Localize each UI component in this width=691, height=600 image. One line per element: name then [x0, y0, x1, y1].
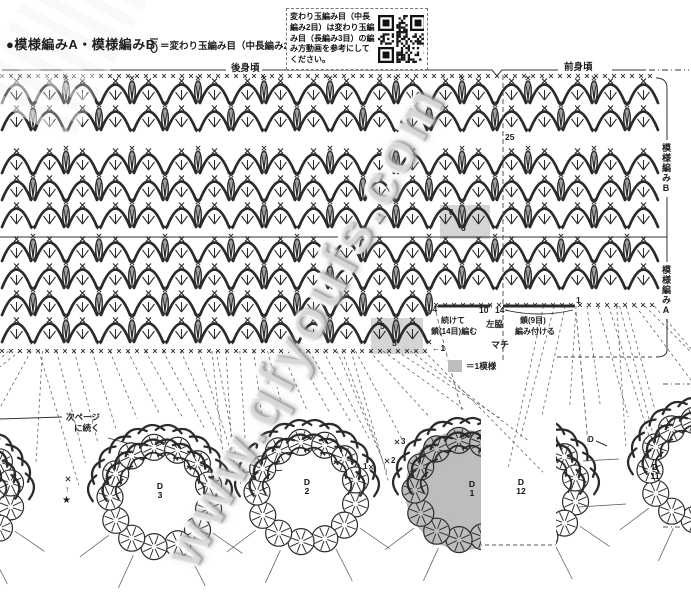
x-stitch [576, 74, 580, 78]
join-number-2: 2 [391, 457, 395, 465]
petal-wheel [643, 480, 669, 506]
up-arrow-icon: ↑ [489, 301, 493, 310]
back-body-label: 後身頃 [229, 64, 262, 74]
motif-number: 2 [297, 487, 317, 496]
x-stitch [278, 203, 283, 208]
qr-module [414, 36, 416, 38]
qr-module [382, 36, 384, 38]
qr-module [405, 36, 407, 38]
shell-sticks [638, 160, 650, 170]
x-stitch [592, 146, 596, 150]
qr-module [407, 54, 409, 56]
shell-sticks [242, 117, 254, 127]
x-stitch [288, 74, 292, 78]
x-stitch [427, 234, 431, 238]
shell-sticks [539, 160, 551, 170]
x-stitch [344, 149, 349, 154]
petal-wheel [408, 500, 434, 526]
shell-sticks [77, 160, 89, 170]
x-stitch [558, 74, 562, 78]
x-stitch [410, 149, 415, 154]
gusset-guide [576, 312, 588, 445]
x-stitch [270, 349, 274, 353]
x-stitch [575, 176, 580, 181]
x-stitch [113, 149, 118, 154]
petal-wheel [0, 470, 24, 496]
guide-line [128, 351, 161, 415]
qr-module [387, 33, 389, 35]
petal-spoke [487, 527, 496, 530]
scallop-arc [478, 437, 499, 449]
x-stitch [542, 176, 547, 181]
shell-sticks [44, 160, 56, 170]
x-stitch [410, 106, 415, 111]
shell-sticks [209, 248, 221, 258]
qr-module [407, 45, 409, 47]
petal-spoke [510, 436, 519, 439]
shell-sticks [638, 248, 650, 258]
qr-module [423, 38, 424, 40]
x-stitch [212, 149, 217, 154]
scallop-arc [92, 460, 104, 484]
shell-sticks [176, 214, 188, 224]
shell-sticks [407, 302, 419, 312]
x-stitch [603, 74, 607, 78]
shell-sticks [110, 214, 122, 224]
x-stitch [608, 264, 613, 269]
qr-module [398, 58, 400, 60]
x-stitch [54, 74, 58, 78]
pattern-b-label: 模様編みB [661, 140, 670, 197]
petal-wheel [486, 436, 512, 462]
shell-sticks [638, 90, 650, 100]
x-stitch [27, 74, 31, 78]
shell-sticks [110, 187, 122, 197]
x-stitch [146, 149, 151, 154]
petal-spoke [491, 453, 500, 456]
x-stitch [476, 79, 481, 84]
shell-sticks [176, 117, 188, 127]
shell-sticks [44, 214, 56, 224]
x-stitch [639, 74, 643, 78]
x-stitch [641, 149, 646, 154]
x-stitch [279, 74, 283, 78]
x-stitch [146, 106, 151, 111]
shell-sticks [638, 214, 650, 224]
petal-wheel [97, 484, 123, 510]
shell-sticks [242, 248, 254, 258]
x-stitch [90, 349, 94, 353]
guide-line [268, 351, 284, 413]
petal-spoke [547, 438, 555, 442]
petal-spoke [499, 438, 502, 447]
petal-spoke [485, 538, 494, 541]
qr-module [396, 45, 398, 47]
shell-sticks [605, 160, 617, 170]
petal-spoke [546, 446, 550, 454]
x-stitch [342, 74, 346, 78]
x-stitch [344, 318, 349, 323]
qr-module [403, 29, 405, 31]
x-stitch [14, 79, 19, 84]
x-stitch [344, 176, 349, 181]
x-stitch [540, 74, 544, 78]
petal-spoke [485, 532, 493, 536]
shell-sticks [77, 117, 89, 127]
motif-tick [80, 535, 109, 557]
x-stitch [113, 264, 118, 269]
petal-spoke [494, 451, 497, 460]
x-stitch [612, 74, 616, 78]
x-stitch [212, 291, 217, 296]
x-stitch [328, 76, 332, 80]
x-stitch [278, 318, 283, 323]
qr-module [417, 42, 419, 44]
x-stitch [212, 106, 217, 111]
pattern-swatch [448, 360, 462, 372]
qr-module [387, 38, 389, 40]
shell-sticks [605, 214, 617, 224]
x-stitch [36, 74, 40, 78]
x-stitch [641, 264, 646, 269]
x-stitch [99, 349, 103, 353]
shell-sticks [110, 160, 122, 170]
petal-spoke [498, 459, 501, 468]
qr-module [403, 17, 405, 19]
scallop-arc [397, 453, 409, 477]
shell-sticks [44, 90, 56, 100]
qr-module [403, 38, 405, 40]
x-stitch [648, 74, 652, 78]
shell-sticks [341, 117, 353, 127]
x-stitch [47, 318, 52, 323]
motif-group [385, 418, 548, 581]
guide-line [645, 306, 691, 407]
qr-module [410, 52, 412, 54]
petal-spoke [522, 528, 525, 537]
petal-spoke [510, 536, 519, 539]
x-stitch [542, 203, 547, 208]
petal-spoke [484, 432, 487, 441]
motif-center [667, 437, 691, 503]
x-stitch [80, 318, 85, 323]
qr-module [403, 56, 405, 58]
x-stitch [113, 106, 118, 111]
qr-module [414, 54, 416, 56]
x-stitch [625, 234, 629, 238]
x-stitch [542, 149, 547, 154]
x-stitch [212, 318, 217, 323]
x-stitch [126, 74, 130, 78]
d-marker: D [588, 436, 594, 444]
x-stitch [311, 264, 316, 269]
shell-sticks [242, 275, 254, 285]
shell-sticks [506, 160, 518, 170]
petal-spoke [505, 452, 513, 456]
x-stitch [262, 146, 266, 150]
qr-module [421, 38, 423, 40]
shell-sticks [11, 302, 23, 312]
front-body-label: 前身頃 [562, 63, 595, 73]
x-stitch [117, 74, 121, 78]
x-stitch [245, 318, 250, 323]
shell-sticks [572, 117, 584, 127]
qr-module [407, 49, 409, 51]
scallop-arc [502, 472, 509, 492]
qr-module [417, 54, 419, 56]
petal-spoke [522, 542, 526, 550]
scallop-arc [557, 429, 578, 445]
x-stitch [641, 303, 645, 307]
petal-spoke [509, 504, 512, 513]
shell-sticks [176, 160, 188, 170]
guide-line [57, 351, 86, 463]
qr-module [380, 36, 382, 38]
shell-sticks [473, 160, 485, 170]
petal-spoke [501, 444, 509, 448]
shell-sticks [506, 187, 518, 197]
motif-tick [189, 554, 205, 586]
x-stitch [641, 106, 646, 111]
x-stitch [245, 176, 250, 181]
shell-sticks [506, 275, 518, 285]
x-stitch [97, 234, 101, 238]
x-stitch [229, 234, 233, 238]
scallop-arc [26, 473, 34, 499]
shell-sticks [341, 187, 353, 197]
shell-sticks [77, 248, 89, 258]
x-stitch [377, 264, 382, 269]
x-stitch [504, 74, 508, 78]
pattern-a-label: 模様編みA [661, 262, 670, 319]
qr-module [405, 47, 407, 49]
shell-sticks [440, 248, 452, 258]
shell-sticks [77, 329, 89, 339]
qr-module [423, 42, 424, 44]
x-stitch [493, 234, 497, 238]
x-stitch [171, 349, 175, 353]
qr-module [398, 29, 400, 31]
swatch-legend: ＝1模様 [466, 362, 496, 371]
x-stitch [410, 203, 415, 208]
x-stitch [443, 176, 448, 181]
shell-sticks [11, 248, 23, 258]
petal-wheel [165, 531, 191, 557]
x-stitch [14, 106, 19, 111]
motif-number: 1 [462, 489, 482, 498]
x-stitch [245, 79, 250, 84]
petal-wheel [489, 444, 515, 470]
shell-sticks [341, 329, 353, 339]
shell-sticks [143, 248, 155, 258]
note-line: み方動画を参考にして [290, 44, 375, 55]
x-stitch [234, 349, 238, 353]
x-stitch [225, 349, 229, 353]
petal-spoke [541, 539, 544, 548]
petal-spoke [485, 444, 494, 447]
motif-tick [336, 549, 352, 581]
shell-sticks [176, 187, 188, 197]
x-stitch [163, 234, 167, 238]
petal-spoke [491, 519, 500, 522]
scallop-arc [525, 446, 545, 453]
next-page-note: に続く [74, 424, 100, 433]
shell-sticks [308, 90, 320, 100]
petal-spoke [503, 503, 511, 507]
guide-line [0, 351, 20, 421]
x-stitch [351, 349, 355, 353]
shell-sticks [341, 302, 353, 312]
qr-module [403, 31, 405, 33]
qr-module [417, 38, 419, 40]
scallop-arc [337, 431, 358, 447]
x-stitch [621, 74, 625, 78]
shell-sticks [176, 248, 188, 258]
shell-sticks [143, 160, 155, 170]
guide-line [145, 351, 183, 418]
x-stitch [64, 146, 68, 150]
x-stitch [0, 349, 4, 353]
shell-sticks [374, 90, 386, 100]
scallop-arc [521, 453, 533, 477]
petal-spoke [487, 445, 496, 448]
x-stitch [36, 349, 40, 353]
qr-module [385, 42, 387, 44]
x-stitch [594, 74, 598, 78]
shell-sticks [44, 117, 56, 127]
x-stitch [526, 76, 530, 80]
qr-module [405, 42, 407, 44]
x-stitch [18, 349, 22, 353]
petal-spoke [516, 503, 525, 506]
shell-sticks [242, 90, 254, 100]
x-stitch [608, 176, 613, 181]
motif-label-d3: D 3 [150, 482, 170, 500]
qr-module [396, 36, 398, 38]
qr-module [403, 54, 405, 56]
shell-sticks [473, 248, 485, 258]
x-stitch [575, 79, 580, 84]
x-stitch [243, 349, 247, 353]
qr-module [412, 61, 414, 63]
x-stitch [608, 149, 613, 154]
x-stitch [360, 349, 364, 353]
x-stitch [113, 291, 118, 296]
qr-finder [382, 52, 389, 59]
x-stitch [179, 176, 184, 181]
qr-module [421, 33, 423, 35]
gusset-label: マチ [491, 341, 509, 350]
qr-module [403, 58, 405, 60]
row-number-1-right: 1 [576, 296, 581, 305]
shell-sticks [374, 187, 386, 197]
x-stitch [179, 79, 184, 84]
shell-sticks [506, 117, 518, 127]
x-stitch [344, 203, 349, 208]
petal-spoke [503, 512, 506, 521]
shell-sticks [242, 329, 254, 339]
petal-spoke [498, 526, 501, 535]
qr-module [405, 24, 407, 26]
qr-code [378, 15, 424, 63]
shell-sticks [539, 214, 551, 224]
guide-line [587, 306, 600, 405]
scallop-arc [523, 418, 549, 426]
shell-sticks [77, 275, 89, 285]
note-line: ください。 [290, 55, 375, 66]
shell-sticks [374, 160, 386, 170]
qr-module [419, 42, 421, 44]
x-stitch [146, 318, 151, 323]
petal-spoke [484, 502, 487, 511]
x-stitch [80, 264, 85, 269]
qr-module [401, 54, 403, 56]
x-stitch [614, 303, 618, 307]
x-stitch [414, 74, 418, 78]
x-stitch [179, 106, 184, 111]
shell-sticks [473, 117, 485, 127]
motif-tick [658, 528, 673, 561]
x-stitch [423, 74, 427, 78]
scallop-arc [0, 434, 12, 450]
qr-module [412, 58, 414, 60]
x-stitch [297, 74, 301, 78]
qr-module [405, 29, 407, 31]
x-stitch [14, 318, 19, 323]
shell-sticks [539, 117, 551, 127]
qr-module [382, 38, 384, 40]
shell-sticks [176, 302, 188, 312]
qr-module [401, 52, 403, 54]
petal-spoke [485, 508, 493, 512]
x-stitch [608, 203, 613, 208]
shell-sticks [374, 248, 386, 258]
x-stitch [378, 74, 382, 78]
petal-wheel [532, 430, 558, 456]
motif-tick [620, 508, 649, 530]
guide-line [254, 351, 263, 423]
x-stitch [216, 349, 220, 353]
scallop-arc [488, 459, 500, 476]
shell-sticks [407, 117, 419, 127]
x-stitch [270, 74, 274, 78]
shell-sticks [440, 90, 452, 100]
shell-sticks [110, 117, 122, 127]
scallop-arc [239, 455, 251, 479]
shell-sticks [374, 117, 386, 127]
x-stitch [80, 176, 85, 181]
x-stitch [179, 291, 184, 296]
x-stitch [460, 146, 464, 150]
shell-sticks [11, 187, 23, 197]
x-stitch [144, 74, 148, 78]
x-stitch [245, 264, 250, 269]
petal-spoke [502, 474, 511, 477]
qr-module [419, 40, 421, 42]
qr-module [401, 26, 403, 28]
shell-sticks [572, 248, 584, 258]
shell-sticks [308, 275, 320, 285]
qr-module [407, 56, 409, 58]
qr-module [378, 38, 380, 40]
x-stitch [261, 349, 265, 353]
x-stitch [585, 74, 589, 78]
guide-line [598, 306, 629, 417]
petal-wheel [250, 502, 276, 528]
guide-line [226, 351, 233, 458]
x-stitch [311, 149, 316, 154]
x-stitch [14, 176, 19, 181]
